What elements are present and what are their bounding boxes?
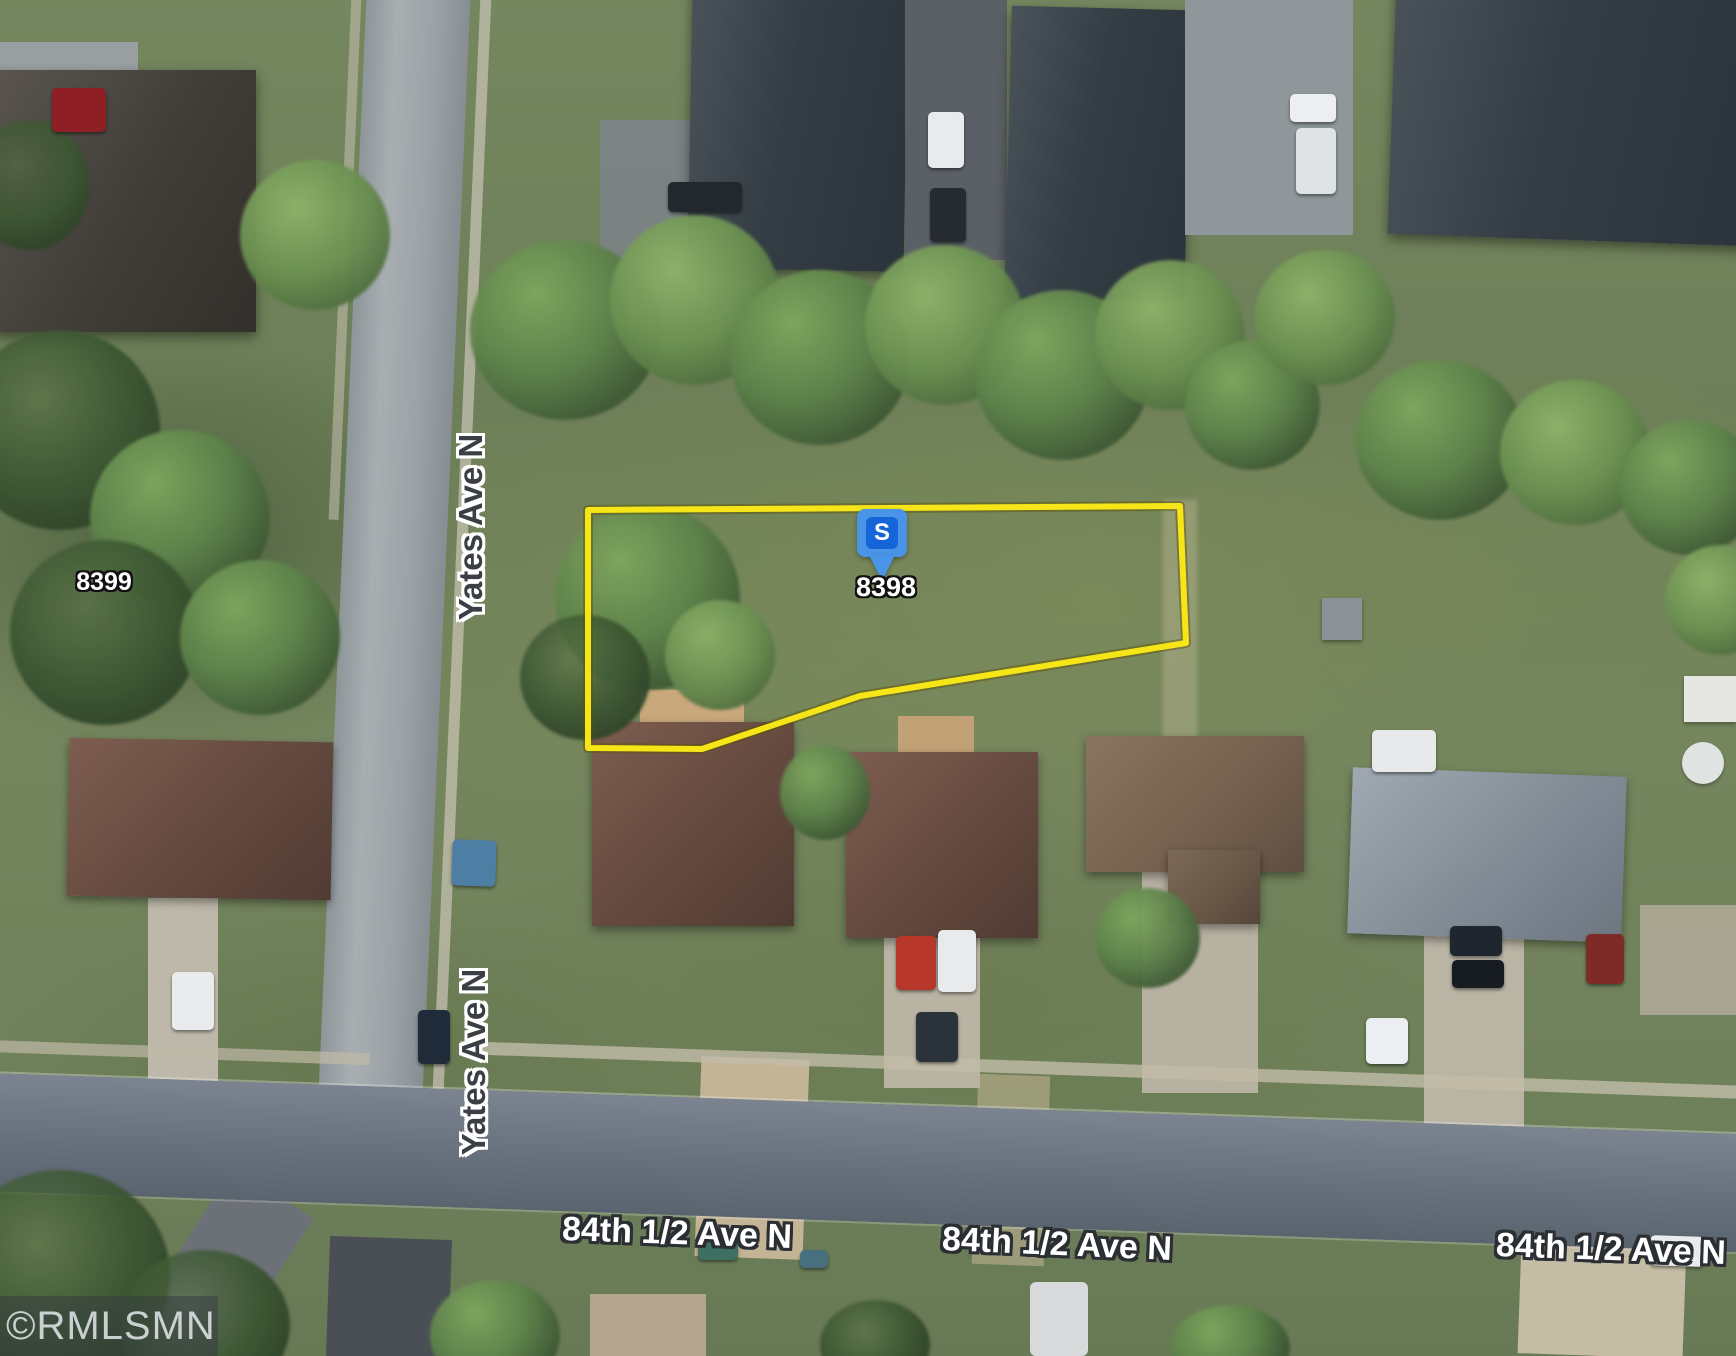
- apartment-roof: [1004, 6, 1192, 303]
- shed: [590, 1294, 706, 1356]
- car: [1290, 94, 1336, 122]
- car: [1366, 1018, 1408, 1064]
- tree: [1665, 545, 1736, 655]
- house-roof: [592, 722, 794, 926]
- tree: [180, 560, 340, 715]
- sidewalk: [460, 1041, 1736, 1100]
- tree: [1355, 360, 1525, 520]
- satellite-map-canvas[interactable]: S 8398 8399 Yates Ave N Yates Ave N 84th…: [0, 0, 1736, 1356]
- car: [418, 1010, 450, 1064]
- rv: [1030, 1282, 1088, 1356]
- street-label-84th-right: 84th 1/2 Ave N: [1495, 1226, 1726, 1273]
- car: [800, 1250, 828, 1268]
- pool: [1682, 742, 1724, 784]
- car: [172, 972, 214, 1030]
- truck-trailer: [1372, 730, 1436, 772]
- car: [1450, 926, 1502, 956]
- car: [1452, 960, 1504, 988]
- tree: [240, 160, 390, 310]
- street-label-84th-left: 84th 1/2 Ave N: [551, 1210, 802, 1258]
- tree: [665, 600, 775, 710]
- rv-boat: [1296, 128, 1336, 194]
- tree: [1095, 888, 1200, 988]
- marker-pin-inner: S: [866, 517, 898, 549]
- street-label-yates-north: Yates Ave N: [452, 431, 490, 623]
- marker-glyph: S: [874, 521, 890, 545]
- tree: [1170, 1305, 1290, 1356]
- tree: [1255, 250, 1395, 385]
- car: [52, 88, 106, 132]
- car: [938, 930, 976, 992]
- driveway: [1640, 905, 1736, 1015]
- car: [896, 936, 936, 990]
- tree: [520, 615, 650, 740]
- apartment-roof: [1388, 0, 1736, 246]
- house-roof: [1347, 767, 1627, 942]
- tree: [820, 1300, 930, 1356]
- car: [668, 182, 742, 212]
- house-roof: [67, 738, 334, 901]
- house-roof: [846, 752, 1038, 938]
- car: [451, 839, 497, 887]
- address-label-subject: 8398: [841, 572, 931, 603]
- street-label-yates-south: Yates Ave N: [455, 966, 493, 1158]
- tree: [780, 745, 870, 840]
- watermark: ©RMLSMN: [0, 1296, 218, 1356]
- car: [916, 1012, 958, 1062]
- driveway: [1424, 925, 1524, 1140]
- car: [928, 112, 964, 168]
- car: [1586, 934, 1624, 984]
- address-label-west: 8399: [54, 568, 154, 597]
- shed: [1322, 598, 1362, 640]
- shed: [1684, 676, 1736, 722]
- car: [930, 188, 966, 242]
